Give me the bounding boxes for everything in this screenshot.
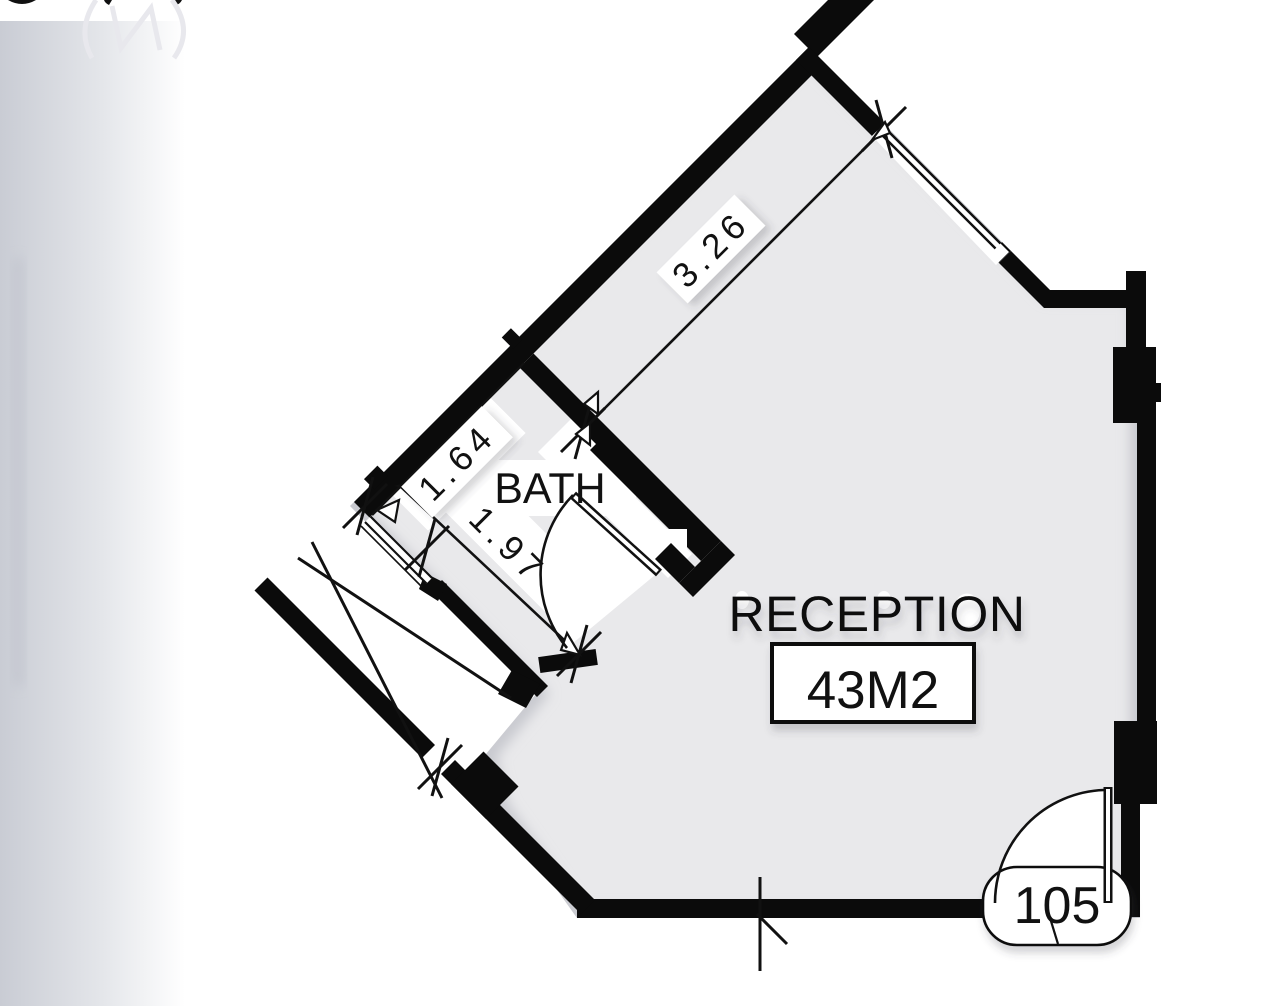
- svg-text:43M2: 43M2: [807, 661, 940, 720]
- svg-text:RECEPTION: RECEPTION: [728, 586, 1025, 642]
- svg-text:BATH: BATH: [494, 465, 606, 513]
- svg-text:105: 105: [1014, 877, 1101, 935]
